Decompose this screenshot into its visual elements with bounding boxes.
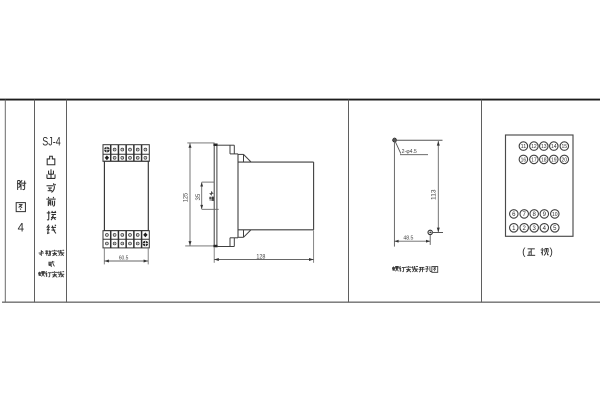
- svg-text:19: 19: [551, 157, 557, 163]
- svg-text:12: 12: [531, 144, 537, 150]
- svg-text:): ): [550, 247, 553, 258]
- svg-text:15: 15: [562, 144, 568, 150]
- svg-text:113: 113: [431, 189, 438, 200]
- svg-text:16: 16: [521, 157, 527, 163]
- svg-text:18: 18: [541, 157, 547, 163]
- svg-text:20: 20: [562, 157, 568, 163]
- svg-text:60.5: 60.5: [119, 256, 129, 262]
- svg-text:SJ-4: SJ-4: [42, 135, 60, 149]
- svg-text:(: (: [522, 247, 526, 258]
- svg-text:35: 35: [195, 193, 202, 200]
- svg-text:10: 10: [552, 212, 558, 218]
- svg-text:125: 125: [183, 193, 190, 202]
- svg-text:14: 14: [551, 144, 557, 150]
- svg-text:13: 13: [541, 144, 547, 150]
- svg-text:2-φ4.5: 2-φ4.5: [402, 149, 417, 155]
- svg-text:48.5: 48.5: [403, 236, 413, 242]
- svg-text:11: 11: [521, 144, 527, 150]
- svg-text:128: 128: [256, 253, 265, 260]
- svg-text:4: 4: [18, 222, 25, 234]
- svg-text:17: 17: [531, 157, 537, 163]
